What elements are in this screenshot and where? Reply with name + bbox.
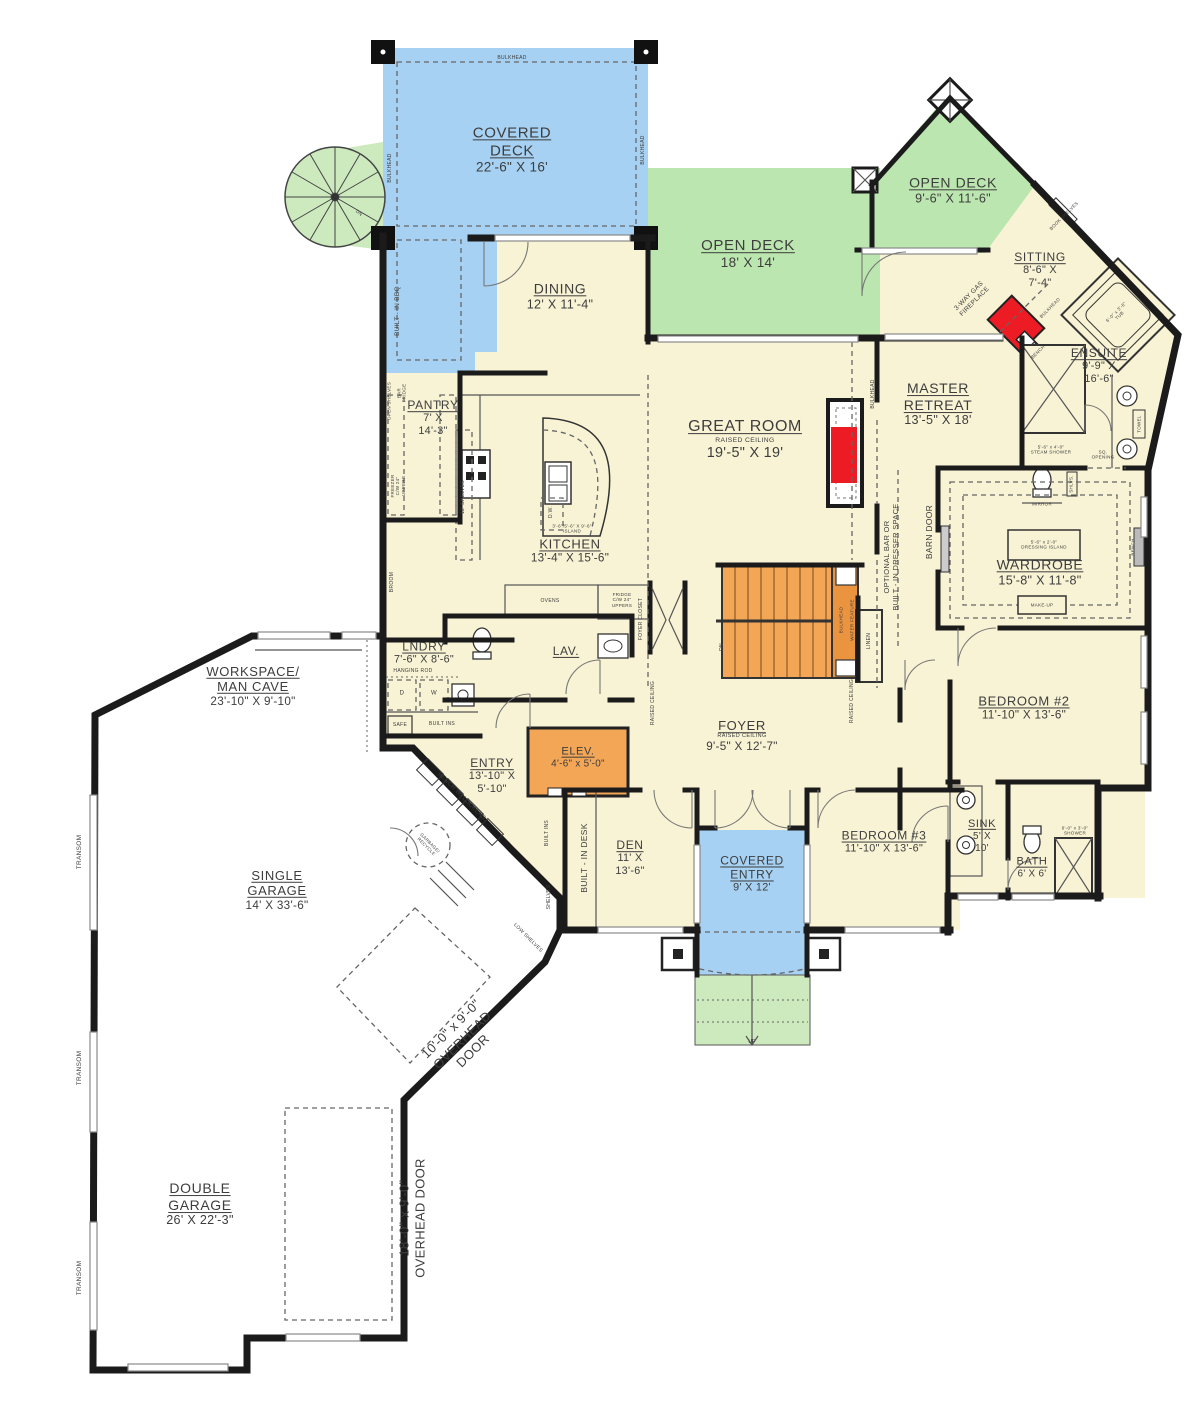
label-bulkhead-sitting: BULKHEAD <box>1039 297 1062 320</box>
room-label-den: DEN11' X13'-6" <box>615 838 644 878</box>
room-label-lav: LAV. <box>553 644 579 658</box>
label-shlvs: SHLVS. <box>1068 475 1073 492</box>
room-label-bedroom-2: BEDROOM #211'-10" X 13'-6" <box>978 693 1069 722</box>
label-garbage-recycle: GARBAGE/RECYCLE <box>415 832 441 858</box>
label-bulkhead-deck-top: BULKHEAD <box>497 55 526 61</box>
label-freezer-uppers: FREEZERC/W 24"UPPERS <box>390 474 406 497</box>
room-label-pantry: PANTRY7' X14'-3" <box>407 398 458 438</box>
label-sq-opening: SQ.OPENING <box>1092 450 1115 461</box>
label-built-ins-entry: BUILT INS <box>544 820 550 846</box>
label-towel: TOWEL <box>1136 415 1141 432</box>
label-gas-fireplace: 3-WAY GASFIREPLACE <box>953 280 991 318</box>
label-safe: SAFE <box>393 722 407 728</box>
room-label-foyer: FOYERRAISED CEILING9'-5" X 12'-7" <box>706 718 778 754</box>
label-raised-ceiling-1: RAISED CEILING <box>650 681 656 725</box>
label-make-up: MAKE-UP <box>1031 602 1054 607</box>
room-label-open-deck-main: OPEN DECK18' X 14' <box>701 237 795 271</box>
label-bench-fireplace: BENCH <box>1030 344 1046 360</box>
room-label-lndry: LNDRY7'-6" X 8'-6" <box>394 640 454 667</box>
label-shower-bath: 6'-0" x 3'-0"SHOWER <box>1062 826 1089 837</box>
room-label-bath: BATH6' X 6' <box>1017 856 1048 881</box>
label-book-shelves: BOOK SHELVES <box>1049 201 1080 232</box>
label-shelves-12: 12' SHELVES <box>460 480 466 514</box>
label-bulkhead-deck-right: BULKHEAD <box>640 135 646 164</box>
floor-plan: COVEREDDECK22'-6" X 16'OPEN DECK18' X 14… <box>0 0 1199 1419</box>
label-broom: BROOM <box>389 572 395 592</box>
label-dw: D.W. <box>548 506 554 518</box>
room-label-great-room: GREAT ROOMRAISED CEILING19'-5" X 19' <box>688 418 802 462</box>
room-label-covered-entry: COVEREDENTRY9' X 12' <box>720 853 784 894</box>
room-label-workspace: WORKSPACE/MAN CAVE23'-10" X 9'-10" <box>206 664 299 708</box>
room-label-sink: SINK5' X10' <box>968 818 996 854</box>
room-label-wardrobe: WARDROBE15'-8" X 11'-8" <box>997 556 1084 587</box>
label-bar-fridge: BARFRIDGE <box>397 384 408 403</box>
label-dn-spiral: DN <box>355 209 364 218</box>
label-fridge-uppers: FRIDGEC/W 24"UPPERS <box>612 592 632 608</box>
plan-labels: COVEREDDECK22'-6" X 16'OPEN DECK18' X 14… <box>0 0 1199 1419</box>
label-dryer: D <box>400 690 405 697</box>
label-transom-2: TRANSOM <box>76 1051 84 1086</box>
label-linen: LINEN <box>866 633 872 649</box>
label-open-shelves: OPEN SHELVES <box>386 382 391 420</box>
label-hanging-rod: HANGING ROD <box>393 668 432 674</box>
label-foyer-closet: FOYER CLOSET <box>638 598 644 640</box>
label-optional-bar: OPTIONAL BAR ORBUILT - IN DRESSER SPACE <box>882 503 900 610</box>
room-label-entry: ENTRY13'-10" X5'-10" <box>469 756 515 796</box>
label-island: 3'-6"/5'-6" X 9'-6"ISLAND <box>552 524 591 535</box>
label-built-in-desk: BUILT - IN DESK <box>579 823 589 892</box>
room-label-ensuite: ENSUITE9'-9" X16'-6" <box>1071 346 1127 386</box>
room-label-master-retreat: MASTERRETREAT13'-5" X 18' <box>904 380 973 428</box>
label-bench-wardrobe: BENCH <box>1130 538 1135 555</box>
label-raised-ceiling-2: RAISED CEILING <box>849 679 855 723</box>
label-washer: W <box>431 690 437 697</box>
label-low-shelves: LOW SHELVES <box>512 922 544 954</box>
label-transom-1: TRANSOM <box>76 835 84 870</box>
label-stairs-dn: DN <box>719 643 725 651</box>
label-ovens: OVENS <box>540 598 559 604</box>
room-label-bedroom-3: BEDROOM #311'-10" X 13'-6" <box>842 829 927 856</box>
label-overhead-door-double: 18'-0" x 9'-0"OVERHEAD DOOR <box>396 1158 427 1277</box>
room-label-covered-deck: COVEREDDECK22'-6" X 16' <box>473 124 551 175</box>
label-bulkhead-master: BULKHEAD <box>870 379 876 408</box>
label-dressing-island: 5'-6" x 2'-0"DRESSING ISLAND <box>1021 540 1067 551</box>
room-label-single-garage: SINGLEGARAGE14' X 33'-6" <box>246 868 309 912</box>
room-label-elev: ELEV.4'-6" x 5'-0" <box>551 746 605 771</box>
room-label-dining: DINING12' X 11'-4" <box>527 280 594 311</box>
label-steam-shower: 5'-6" x 4'-0"STEAM SHOWER <box>1031 445 1072 456</box>
label-built-ins-lndry: BUILT INS <box>429 721 455 727</box>
label-bulkhead-stairs: BULKHEAD <box>838 607 843 634</box>
label-shelves-den: SHELVES <box>546 885 552 910</box>
label-water-feature: WATER FEATURE <box>849 599 854 641</box>
label-bulkhead-deck-left: BULKHEAD <box>387 153 393 182</box>
label-mirror: MIRROR <box>1032 501 1052 506</box>
label-barn-door: BARN DOOR <box>924 505 934 559</box>
label-transom-3: TRANSOM <box>76 1261 84 1296</box>
label-overhead-door-single: 10'-0" x 9'-0"OVERHEADDOOR <box>418 996 505 1083</box>
room-label-kitchen: KITCHEN13'-4" X 15'-6" <box>531 536 609 565</box>
room-label-sitting: SITTING8'-6" X7'-4" <box>1014 250 1066 290</box>
room-label-double-garage: DOUBLEGARAGE26' X 22'-3" <box>166 1180 234 1228</box>
label-built-in-bbq: BUILT - IN BBQ <box>394 286 402 336</box>
label-up-steps: UP <box>748 1039 756 1045</box>
label-tub: 6'-0" x 3'-6"TUB <box>1105 301 1131 327</box>
room-label-open-deck-upper: OPEN DECK9'-6" X 11'-6" <box>909 174 997 205</box>
